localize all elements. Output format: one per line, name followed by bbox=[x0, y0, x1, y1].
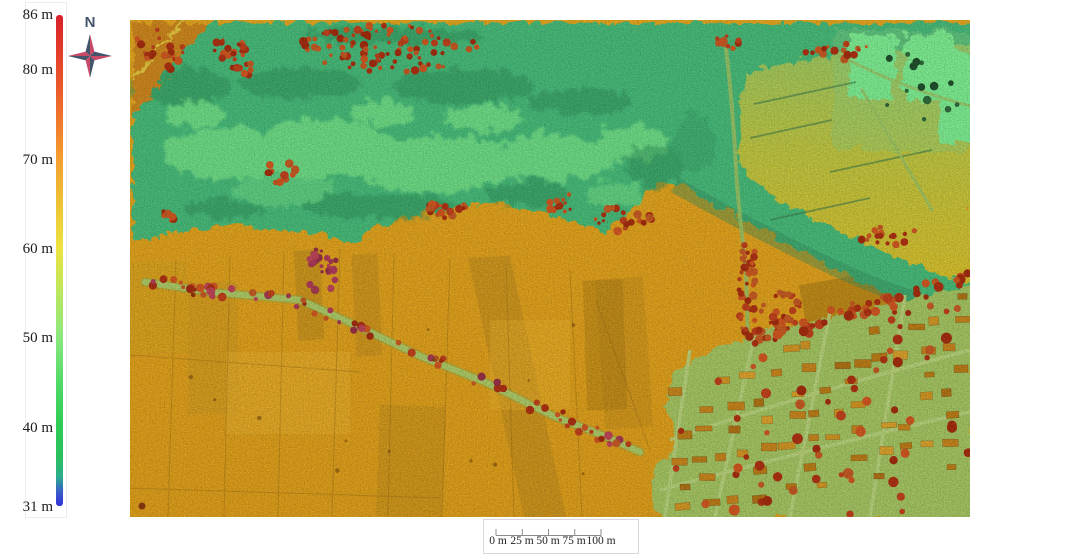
legend-tick-60m: 60 m bbox=[0, 240, 53, 258]
elevation-colorbar bbox=[56, 15, 63, 506]
legend-tick-80m: 80 m bbox=[0, 61, 53, 79]
legend-tick-50m: 50 m bbox=[0, 329, 53, 347]
legend-tick-70m: 70 m bbox=[0, 151, 53, 169]
map-scale-bar: 0 m 25 m 50 m 75 m 100 m bbox=[483, 519, 639, 554]
legend-tick-40m: 40 m bbox=[0, 419, 53, 437]
terrain-grain-light bbox=[130, 20, 970, 517]
scale-label-100m: 100 m bbox=[579, 535, 623, 547]
legend-tick-31m: 31 m bbox=[0, 498, 53, 516]
legend-tick-86m: 86 m bbox=[0, 6, 53, 24]
dem-map-figure: 86 m 80 m 70 m 60 m 50 m 40 m 31 m N bbox=[0, 0, 1080, 559]
compass-rose-icon bbox=[66, 32, 114, 80]
north-arrow: N bbox=[64, 14, 116, 90]
north-label: N bbox=[64, 14, 116, 31]
elevation-map bbox=[130, 20, 970, 517]
